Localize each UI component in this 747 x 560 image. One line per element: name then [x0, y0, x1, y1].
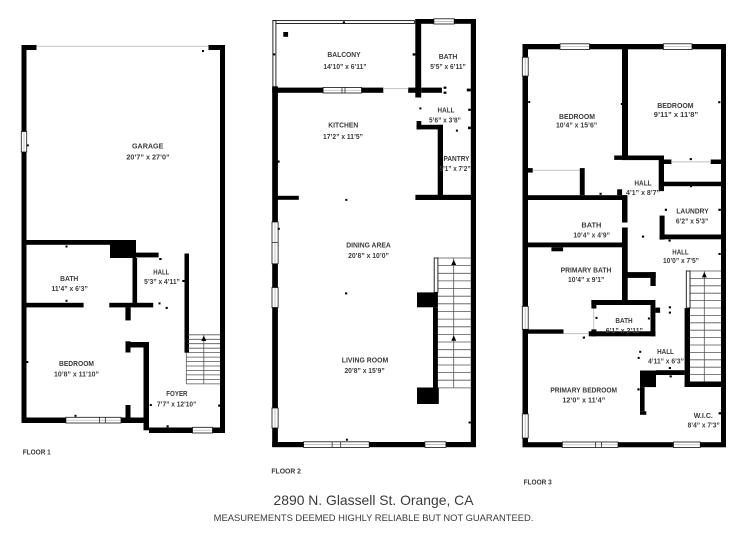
svg-text:HALL: HALL — [153, 267, 169, 276]
svg-text:BATH: BATH — [581, 220, 601, 229]
svg-text:6’1” x 2’11”: 6’1” x 2’11” — [606, 326, 644, 335]
svg-text:10’0” x 7’5”: 10’0” x 7’5” — [663, 256, 699, 265]
svg-text:DINING AREA: DINING AREA — [346, 241, 391, 250]
svg-text:KITCHEN: KITCHEN — [328, 121, 358, 130]
svg-text:5’1” x 7’2”: 5’1” x 7’2” — [440, 164, 471, 173]
svg-text:20’7” x 27’0”: 20’7” x 27’0” — [126, 153, 170, 162]
svg-text:LIVING ROOM: LIVING ROOM — [342, 356, 388, 365]
svg-text:FLOOR 3: FLOOR 3 — [524, 477, 552, 486]
svg-text:8’4” x 7’3”: 8’4” x 7’3” — [688, 420, 721, 429]
svg-text:GARAGE: GARAGE — [132, 141, 164, 150]
svg-text:BATH: BATH — [439, 52, 458, 61]
svg-text:BALCONY: BALCONY — [327, 50, 360, 59]
svg-text:10’4” x 4’9”: 10’4” x 4’9” — [573, 230, 610, 239]
svg-text:11’4” x 6’3”: 11’4” x 6’3” — [52, 284, 89, 293]
svg-text:BATH: BATH — [615, 316, 632, 325]
svg-text:2890 N. Glassell St. Orange, C: 2890 N. Glassell St. Orange, CA — [274, 492, 475, 508]
svg-text:5’3” x 4’11”: 5’3” x 4’11” — [144, 277, 180, 286]
svg-text:6’2” x 5’3”: 6’2” x 5’3” — [676, 216, 709, 225]
svg-text:9’11” x 11’8”: 9’11” x 11’8” — [654, 110, 699, 119]
svg-text:10’4” x 9’1”: 10’4” x 9’1” — [568, 275, 605, 284]
svg-text:5’6” x 3’8”: 5’6” x 3’8” — [429, 116, 461, 125]
svg-text:PANTRY: PANTRY — [444, 154, 470, 163]
svg-text:5’5” x 6’11”: 5’5” x 6’11” — [430, 62, 466, 71]
svg-text:LAUNDRY: LAUNDRY — [676, 207, 708, 216]
svg-text:7’7” x 12’10”: 7’7” x 12’10” — [157, 400, 197, 409]
svg-text:FLOOR 1: FLOOR 1 — [23, 448, 51, 457]
svg-text:10’4” x 15’6”: 10’4” x 15’6” — [556, 120, 598, 129]
svg-text:HALL: HALL — [672, 247, 689, 256]
svg-text:4’1” x 8’7”: 4’1” x 8’7” — [626, 188, 660, 197]
svg-text:MEASUREMENTS DEEMED HIGHLY REL: MEASUREMENTS DEEMED HIGHLY RELIABLE BUT … — [214, 512, 534, 523]
svg-text:14’10” x 6’11”: 14’10” x 6’11” — [323, 62, 367, 71]
svg-text:PRIMARY BEDROOM: PRIMARY BEDROOM — [550, 386, 617, 395]
svg-text:BEDROOM: BEDROOM — [59, 359, 94, 368]
svg-text:FLOOR 2: FLOOR 2 — [271, 467, 301, 476]
svg-text:FOYER: FOYER — [166, 389, 188, 398]
svg-text:BATH: BATH — [60, 274, 78, 283]
svg-text:17’2” x 11’5”: 17’2” x 11’5” — [323, 132, 363, 141]
svg-text:HALL: HALL — [657, 347, 674, 356]
svg-text:10’8” x 11’10”: 10’8” x 11’10” — [54, 369, 99, 378]
svg-text:BEDROOM: BEDROOM — [657, 101, 693, 110]
svg-text:HALL: HALL — [634, 179, 652, 188]
svg-text:4’11” x 6’3”: 4’11” x 6’3” — [648, 356, 684, 365]
svg-text:12’0” x 11’4”: 12’0” x 11’4” — [562, 395, 605, 404]
svg-text:PRIMARY BATH: PRIMARY BATH — [561, 265, 612, 274]
svg-text:HALL: HALL — [438, 105, 455, 114]
svg-text:20’8” x 10’0”: 20’8” x 10’0” — [348, 251, 389, 260]
svg-text:W.I.C.: W.I.C. — [694, 411, 713, 420]
svg-text:20’8” x 15’9”: 20’8” x 15’9” — [344, 366, 385, 375]
